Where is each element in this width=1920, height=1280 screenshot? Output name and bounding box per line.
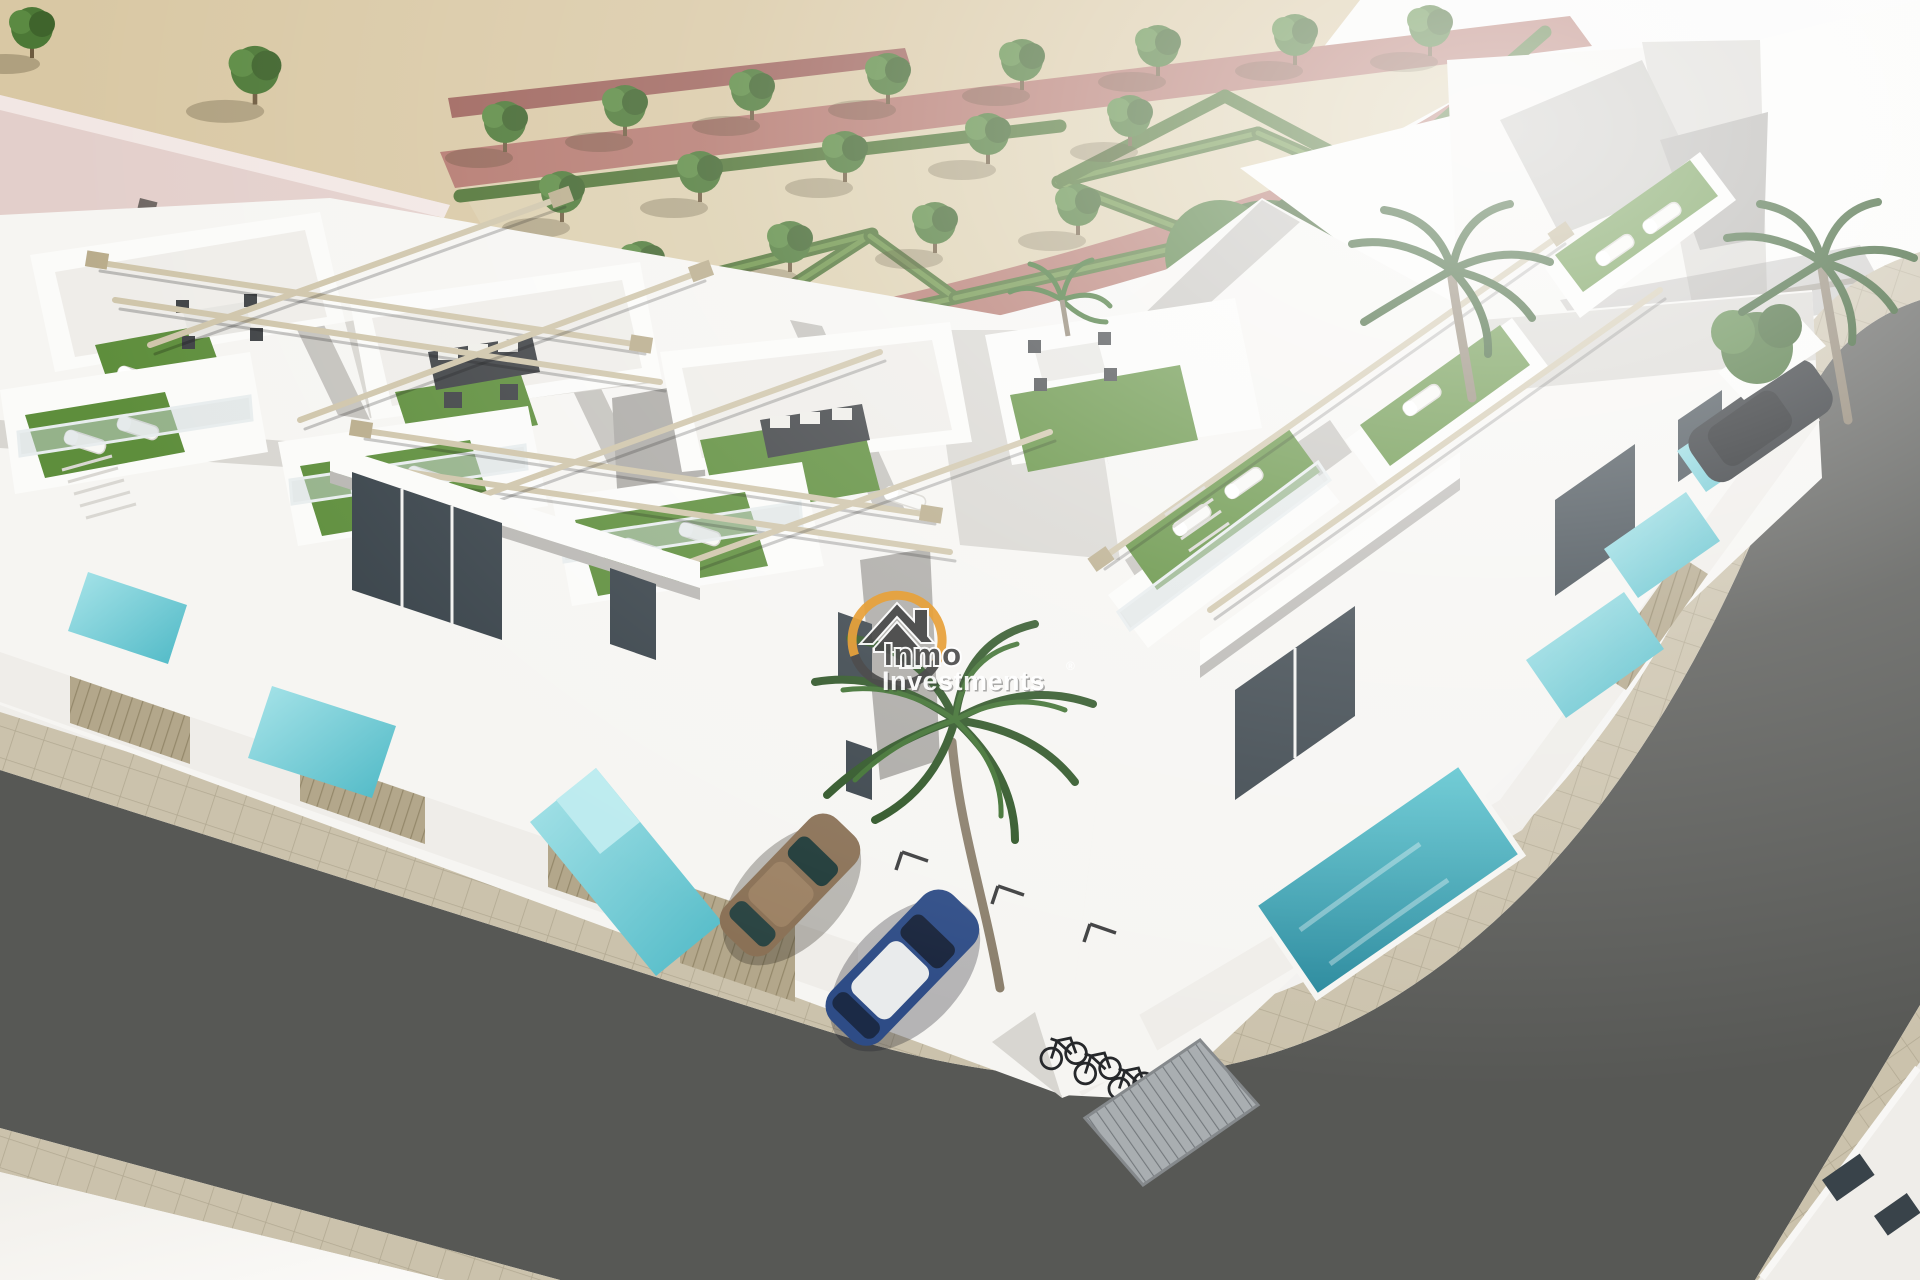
watermark-registered: ® <box>1066 659 1075 673</box>
render-image: Inmo Investments Investments ® <box>0 0 1920 1280</box>
watermark-line2: Investments <box>882 666 1045 696</box>
scene-canvas: Inmo Investments Investments ® <box>0 0 1920 1280</box>
